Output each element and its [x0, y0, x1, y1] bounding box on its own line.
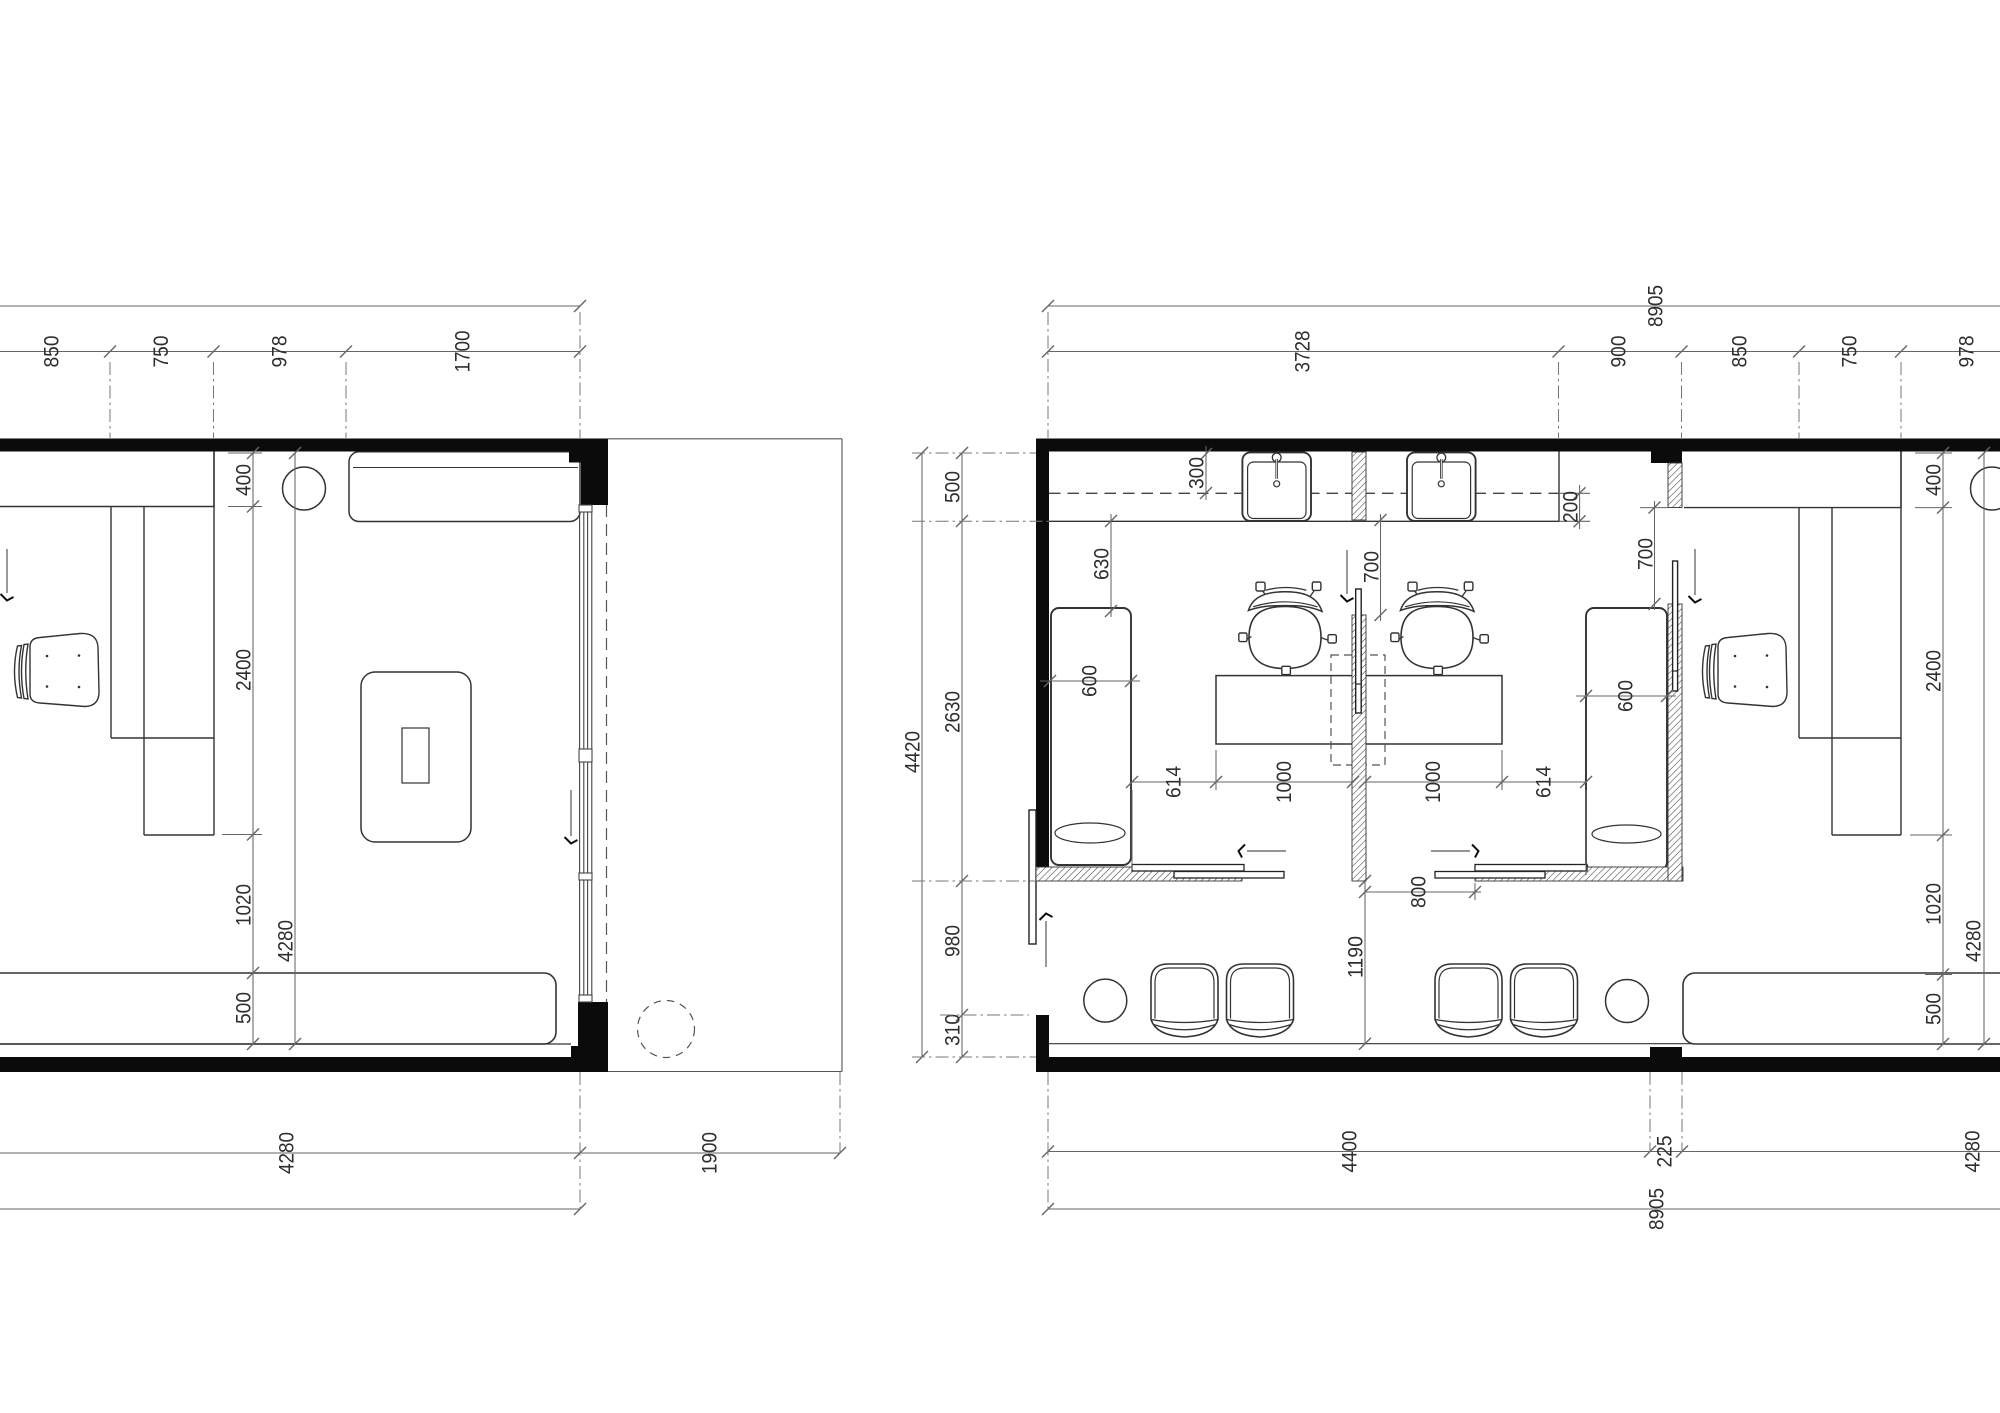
svg-text:614: 614	[1533, 766, 1556, 798]
svg-text:978: 978	[1956, 336, 1979, 368]
svg-text:630: 630	[1091, 548, 1114, 580]
svg-text:4280: 4280	[276, 1132, 299, 1174]
svg-text:900: 900	[1608, 336, 1631, 368]
svg-text:4280: 4280	[1962, 1131, 1985, 1173]
svg-text:500: 500	[1923, 993, 1946, 1025]
svg-text:8905: 8905	[1646, 1188, 1669, 1230]
svg-text:4420: 4420	[902, 731, 925, 773]
svg-text:500: 500	[942, 471, 965, 503]
svg-text:2400: 2400	[1923, 650, 1946, 692]
svg-text:4280: 4280	[275, 920, 298, 962]
svg-text:750: 750	[150, 336, 173, 368]
svg-text:8905: 8905	[1645, 285, 1668, 327]
svg-text:614: 614	[1163, 766, 1186, 798]
svg-text:2400: 2400	[233, 649, 256, 691]
svg-text:4400: 4400	[1339, 1131, 1362, 1173]
svg-text:1020: 1020	[1923, 883, 1946, 925]
svg-text:800: 800	[1408, 876, 1431, 908]
svg-text:978: 978	[269, 336, 292, 368]
svg-text:400: 400	[233, 464, 256, 496]
svg-text:850: 850	[41, 336, 64, 368]
svg-text:300: 300	[1186, 457, 1209, 489]
svg-text:310: 310	[942, 1014, 965, 1046]
svg-text:200: 200	[1560, 491, 1583, 523]
svg-text:1000: 1000	[1422, 761, 1445, 803]
svg-text:1700: 1700	[452, 331, 475, 373]
svg-text:700: 700	[1361, 551, 1384, 583]
svg-text:3728: 3728	[1292, 331, 1315, 373]
svg-text:2630: 2630	[942, 691, 965, 733]
svg-text:4280: 4280	[1963, 920, 1986, 962]
svg-text:1900: 1900	[699, 1132, 722, 1174]
svg-text:225: 225	[1654, 1136, 1677, 1168]
svg-text:700: 700	[1635, 538, 1658, 570]
svg-text:980: 980	[942, 925, 965, 957]
svg-text:600: 600	[1079, 665, 1102, 697]
svg-text:1020: 1020	[233, 884, 256, 926]
svg-text:750: 750	[1839, 336, 1862, 368]
svg-text:850: 850	[1729, 336, 1752, 368]
svg-text:1000: 1000	[1273, 761, 1296, 803]
svg-text:500: 500	[233, 992, 256, 1024]
svg-text:400: 400	[1923, 464, 1946, 496]
svg-text:600: 600	[1615, 680, 1638, 712]
svg-text:1190: 1190	[1345, 936, 1368, 978]
